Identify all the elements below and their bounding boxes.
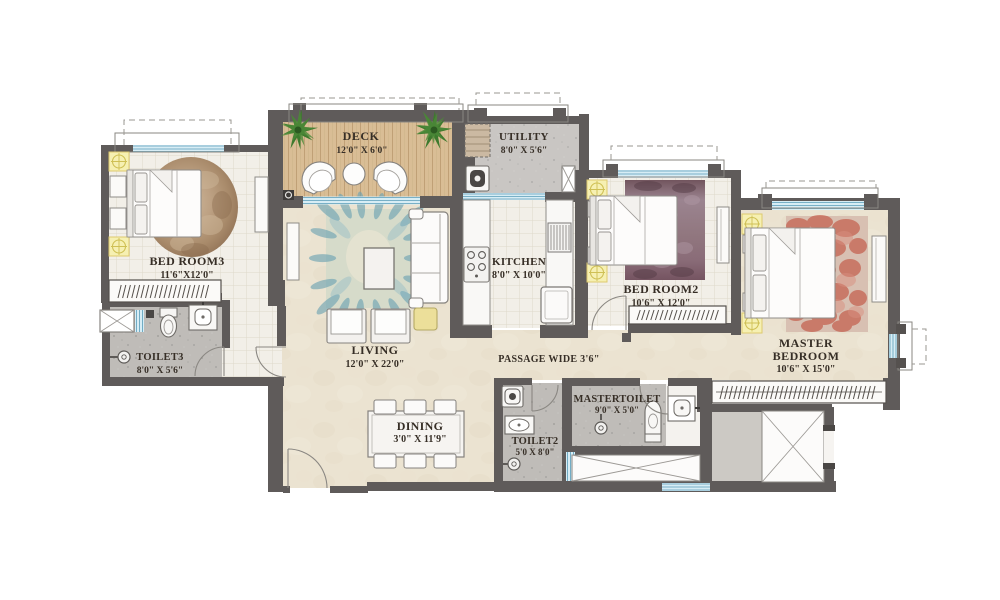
svg-text:TOILET2: TOILET2 [512, 436, 559, 447]
svg-text:LIVING: LIVING [351, 343, 398, 357]
svg-text:PASSAGE WIDE 3'6": PASSAGE WIDE 3'6" [498, 354, 599, 365]
svg-text:9'0" X 5'0": 9'0" X 5'0" [595, 405, 639, 415]
svg-text:MASTER: MASTER [779, 336, 833, 350]
svg-text:TOILET3: TOILET3 [136, 352, 183, 363]
svg-text:11'6"X12'0": 11'6"X12'0" [160, 270, 213, 281]
svg-text:12'0" X 6'0": 12'0" X 6'0" [336, 146, 387, 156]
svg-text:3'0" X 11'9": 3'0" X 11'9" [393, 434, 446, 445]
svg-text:10'6" X 12'0": 10'6" X 12'0" [632, 298, 691, 309]
svg-text:UTILITY: UTILITY [499, 131, 549, 143]
svg-text:8'0" X 5'6": 8'0" X 5'6" [501, 146, 547, 156]
svg-text:MASTERTOILET: MASTERTOILET [573, 394, 660, 405]
svg-text:KITCHEN: KITCHEN [492, 256, 546, 268]
svg-text:DECK: DECK [343, 129, 380, 143]
svg-text:8'0" X 10'0": 8'0" X 10'0" [492, 270, 546, 281]
svg-text:8'0" X 5'6": 8'0" X 5'6" [137, 366, 183, 376]
svg-text:10'6" X 15'0": 10'6" X 15'0" [777, 364, 836, 375]
svg-text:BED ROOM3: BED ROOM3 [149, 254, 224, 268]
svg-text:5'0 X 8'0": 5'0 X 8'0" [516, 447, 555, 457]
svg-text:BEDROOM: BEDROOM [773, 349, 840, 363]
svg-text:DINING: DINING [397, 419, 443, 433]
svg-text:12'0" X 22'0": 12'0" X 22'0" [346, 359, 405, 370]
svg-text:BED ROOM2: BED ROOM2 [623, 282, 698, 296]
